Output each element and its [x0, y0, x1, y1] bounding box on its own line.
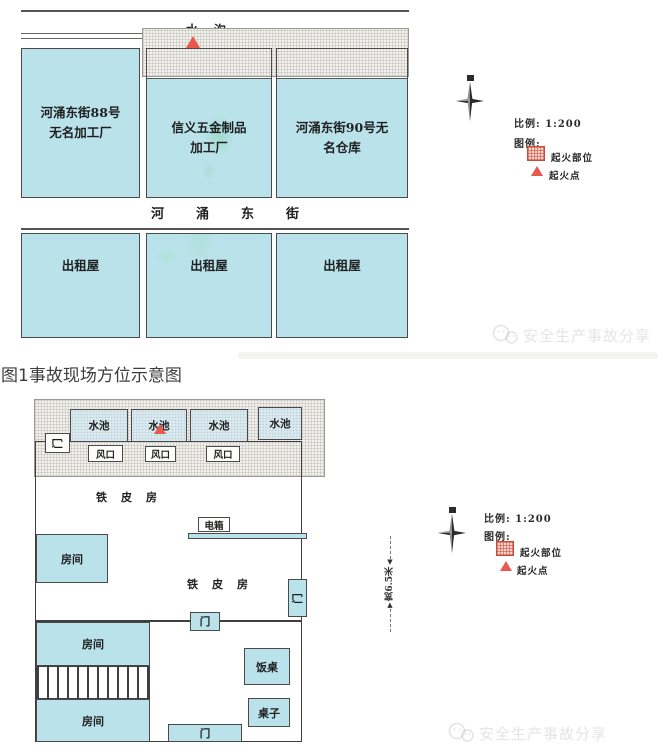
vent-2-label: 风口 — [151, 447, 170, 461]
bench-bar — [188, 533, 307, 539]
map2-legend-fire-area-swatch — [496, 541, 514, 556]
staircase — [36, 666, 150, 699]
building-90-label: 河涌东街90号无 名仓库 — [296, 118, 388, 158]
building-88-label: 河涌东街88号 无名加工厂 — [41, 103, 121, 143]
building-xinyi: 信义五金制品 加工厂 — [146, 48, 272, 198]
electric-box-label: 电箱 — [204, 518, 223, 532]
map1-legend-fire-point-swatch — [531, 166, 543, 176]
water-pool-3-label: 水池 — [209, 418, 230, 433]
vent-1: 风口 — [88, 445, 123, 462]
small-table: 桌子 — [248, 698, 290, 727]
room-2: 房间 — [36, 622, 150, 666]
water-pool-3: 水池 — [190, 409, 248, 442]
dining-table-label: 饭桌 — [256, 659, 278, 675]
room-1: 房间 — [36, 534, 108, 583]
map2-scale-label: 比例: 1:200 — [484, 510, 552, 525]
wechat-bubbles-icon — [492, 324, 519, 346]
page: 水沟 河涌东街88号 无名加工厂 信义五金制品 加工厂 河涌东街90号无 名仓库… — [0, 0, 663, 755]
small-table-label: 桌子 — [258, 705, 280, 721]
dimension-label: 宽6.5米 — [386, 566, 395, 602]
map2-legend-fire-area-label: 起火部位 — [520, 545, 562, 559]
door-middle-label: 门 — [200, 614, 211, 629]
room-3: 房间 — [36, 699, 150, 742]
watermark-lower-text: 安全生产事故分享 — [479, 723, 607, 744]
room-2-label: 房间 — [82, 636, 104, 652]
vent-2: 风口 — [145, 446, 176, 462]
vent-3: 风口 — [206, 446, 240, 462]
map1-legend-fire-point-label: 起火点 — [549, 168, 581, 182]
dining-table: 饭桌 — [244, 648, 290, 685]
water-pool-2: 水池 — [131, 409, 187, 442]
map1-legend-fire-area-swatch — [527, 146, 545, 161]
rental-house-1: 出租屋 — [21, 233, 140, 338]
dimension-line-lower — [390, 609, 391, 632]
map1-legend-fire-area-label: 起火部位 — [551, 150, 593, 164]
electric-box: 电箱 — [198, 517, 230, 532]
wechat-bubbles-icon-2 — [448, 722, 475, 744]
door-bottom-label: 门 — [200, 726, 211, 741]
compass-north-icon — [455, 74, 485, 122]
water-pool-4-label: 水池 — [270, 416, 291, 431]
map2-fire-point-marker — [154, 424, 166, 434]
building-88: 河涌东街88号 无名加工厂 — [21, 48, 140, 198]
watermark-upper-text: 安全生产事故分享 — [523, 325, 651, 346]
ditch-left-line-1 — [21, 33, 142, 34]
rental-house-2-label: 出租屋 — [190, 256, 228, 276]
door-top-left-label: 门 — [50, 438, 65, 449]
door-right-wall-label: 门 — [290, 593, 305, 604]
room-1-label: 房间 — [61, 551, 83, 567]
building-xinyi-label: 信义五金制品 加工厂 — [171, 118, 246, 158]
door-bottom: 门 — [168, 724, 242, 742]
rental-house-1-label: 出租屋 — [62, 256, 100, 276]
iron-sheet-house-label-1: 铁皮房 — [96, 489, 171, 505]
water-pool-1-label: 水池 — [89, 418, 110, 433]
map2-legend-fire-point-label: 起火点 — [517, 563, 549, 577]
map2-legend-fire-point-swatch — [500, 561, 512, 571]
door-middle: 门 — [190, 612, 220, 631]
iron-sheet-house-label-2: 铁皮房 — [187, 576, 262, 592]
building-90: 河涌东街90号无 名仓库 — [276, 48, 408, 198]
compass-north-icon-2 — [437, 506, 467, 554]
water-pool-1: 水池 — [70, 409, 128, 442]
page-divider-band — [238, 352, 658, 359]
water-pool-4: 水池 — [258, 407, 302, 440]
width-dimension-annotation: ▼ 宽6.5米 ▲ — [381, 536, 399, 632]
ditch-top-line — [21, 10, 409, 12]
room-3-label: 房间 — [82, 713, 104, 729]
watermark-lower: 安全生产事故分享 — [448, 722, 607, 744]
rental-house-3: 出租屋 — [276, 233, 408, 338]
rental-house-3-label: 出租屋 — [323, 256, 361, 276]
fire-point-marker — [186, 36, 200, 48]
vent-1-label: 风口 — [96, 447, 115, 461]
watermark-upper: 安全生产事故分享 — [492, 324, 651, 346]
door-right-wall: 门 — [288, 579, 307, 617]
dimension-arrow-up-icon: ▲ — [387, 602, 392, 609]
dimension-line-upper — [390, 536, 391, 559]
street-name-label: 河涌东街 — [151, 203, 331, 222]
figure-caption: 图1事故现场方位示意图 — [1, 361, 182, 386]
door-top-left: 门 — [45, 433, 70, 453]
street-bottom-line — [21, 228, 409, 230]
rental-house-2: 出租屋 — [146, 233, 272, 338]
ditch-left-line-2 — [21, 38, 142, 39]
map1-scale-label: 比例: 1:200 — [514, 115, 582, 130]
vent-3-label: 风口 — [213, 447, 232, 461]
